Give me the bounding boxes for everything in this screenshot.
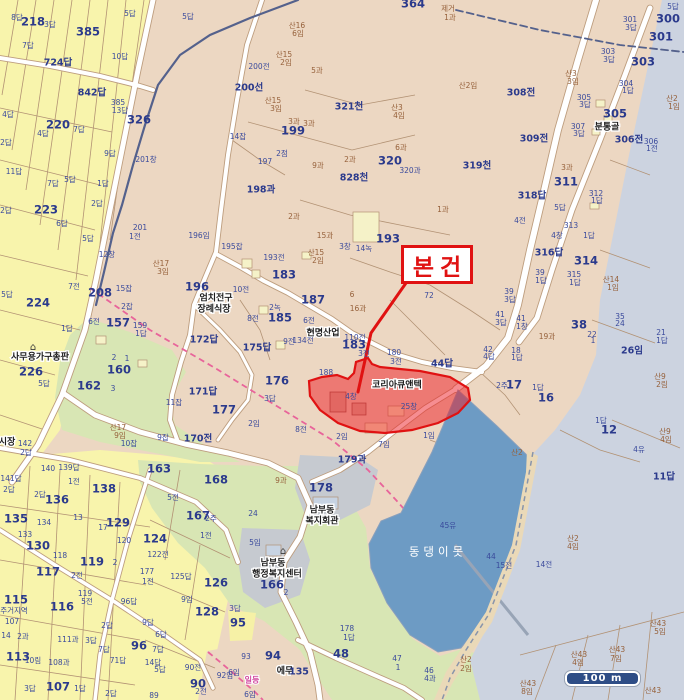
parcel-label: 15과 [317, 231, 334, 240]
parcel-label: 224 [26, 296, 50, 310]
parcel-label: 3전 [390, 356, 402, 366]
parcel-label: 44 [486, 552, 496, 561]
parcel-label: 89 [149, 691, 159, 700]
parcel-label: 15잡 [116, 283, 133, 293]
parcel-label: 9전 [283, 336, 295, 346]
parcel-label: 엄치전구 [199, 292, 232, 304]
parcel-label: 5답 [554, 202, 566, 212]
parcel-label: 3답 [44, 19, 56, 29]
parcel-label: 1전 [142, 576, 154, 586]
parcel-label: 163 [147, 462, 171, 476]
subject-parcel-building [330, 392, 346, 412]
parcel-label: 1임 [423, 431, 435, 440]
parcel-label: 129 [106, 516, 130, 530]
parcel-label: 208 [88, 286, 112, 300]
parcel-label: 130 [26, 539, 50, 553]
parcel-label: 218 [21, 15, 45, 29]
parcel-label: 2임 [336, 432, 348, 441]
parcel-label: 96답 [121, 596, 138, 606]
parcel-label: 2답 [0, 205, 12, 215]
parcel-label: 3답 [573, 128, 585, 138]
parcel-label: 199 [281, 124, 305, 138]
parcel-label: 10전 [233, 284, 250, 294]
parcel-label: 3답 [625, 22, 637, 32]
parcel-label: 8임 [521, 687, 533, 696]
parcel-label: 9답 [104, 148, 116, 158]
parcel-label: 385 [76, 25, 100, 39]
parcel-label: 125답 [170, 571, 191, 581]
parcel-label: 118 [53, 551, 68, 560]
parcel-label: 178 [309, 481, 333, 495]
parcel-label: 12창 [99, 250, 116, 259]
parcel-label: 5답 [182, 11, 194, 21]
parcel-label: 4임 [393, 111, 405, 120]
parcel-label: 128 [195, 605, 219, 619]
parcel-label: 171답 [189, 386, 218, 398]
parcel-label: 산2 [511, 447, 523, 457]
parcel-label: 193 [376, 232, 400, 246]
parcel-label: 5답 [64, 174, 76, 184]
parcel-label: 139답 [58, 462, 79, 472]
parcel-label: 5답 [124, 8, 136, 18]
building-footprint [138, 360, 147, 367]
parcel-label: 72 [424, 291, 434, 300]
parcel-label: 4창 [551, 231, 563, 240]
parcel-label: 108과 [48, 658, 69, 667]
parcel-label: 179과 [338, 454, 367, 466]
parcel-label: 321천 [335, 102, 364, 113]
parcel-label: 301 [649, 30, 673, 44]
parcel-label: 16과 [350, 304, 367, 313]
parcel-label: 316답 [535, 247, 564, 259]
parcel-label: 17 [506, 378, 522, 392]
parcel-label: 2잡 [121, 301, 133, 311]
parcel-label: 3답 [495, 317, 507, 327]
parcel-label: 6과 [395, 143, 407, 152]
parcel-label: 7임 [610, 654, 622, 663]
parcel-label: 178 [340, 624, 355, 633]
parcel-label: 1전 [200, 530, 212, 540]
parcel-label: 2전 [71, 570, 83, 580]
parcel-label: 185 [268, 311, 292, 325]
parcel-label: 187 [301, 293, 325, 307]
parcel-label: 산43 [645, 685, 662, 695]
parcel-label: 코리아큐앤텍 [372, 379, 422, 391]
parcel-label: 107 [46, 680, 70, 694]
parcel-label: 4창 [345, 392, 357, 401]
parcel-label: 119 [80, 555, 104, 569]
parcel-label: 115 [4, 593, 28, 607]
parcel-label: 162 [77, 379, 101, 393]
parcel-label: 2과 [17, 632, 29, 641]
parcel-label: 2답 [105, 688, 117, 698]
parcel-label: 14전 [536, 559, 553, 569]
parcel-label: 4답 [483, 351, 495, 361]
parcel-label: 107 [5, 617, 20, 626]
parcel-label: 200선 [235, 82, 264, 94]
parcel-label: 135 [289, 667, 309, 678]
parcel-label: 1전 [68, 476, 80, 486]
parcel-label: 4과 [424, 674, 436, 683]
parcel-label: 3과 [561, 163, 573, 172]
parcel-label: 2 [113, 558, 118, 567]
parcel-label: 2점 [276, 148, 288, 158]
parcel-label: 126 [204, 576, 228, 590]
parcel-label: 134 [37, 518, 52, 527]
subject-annotation-box: 본건 [401, 245, 473, 284]
parcel-label: 828천 [340, 173, 369, 184]
parcel-label: 135 [4, 512, 28, 526]
parcel-label: 134전 [292, 335, 313, 345]
map-scale-bar: 100 m [565, 671, 640, 686]
parcel-label: 5답 [1, 289, 13, 299]
parcel-label: 25창 [401, 402, 418, 411]
building-footprint [266, 545, 281, 556]
parcel-label: 1답 [591, 195, 603, 205]
parcel-label: 1답 [569, 277, 581, 287]
parcel-label: 2임 [312, 256, 324, 265]
subject-parcel-building [352, 403, 366, 415]
parcel-label: 2임 [248, 419, 260, 428]
building-icon: ⌂ [280, 546, 286, 557]
parcel-label: 5전 [81, 596, 93, 606]
parcel-label: 6전 [303, 315, 315, 325]
parcel-label: 주거지역 [0, 605, 28, 615]
parcel-label: 3 [111, 384, 116, 393]
parcel-label: 93 [241, 652, 251, 661]
parcel-label: 4임 [660, 435, 672, 444]
parcel-label: 2답 [101, 620, 113, 630]
parcel-label: 6임 [244, 690, 256, 699]
parcel-label: 4전 [514, 215, 526, 225]
building-footprint [259, 306, 268, 314]
parcel-label: 177 [212, 403, 236, 417]
parcel-label: 175답 [243, 342, 272, 354]
parcel-label: 7답 [22, 40, 34, 50]
parcel-label: 7전 [68, 281, 80, 291]
parcel-label: 1답 [535, 275, 547, 285]
parcel-label: 5임 [654, 627, 666, 636]
parcel-label: 3임 [567, 77, 579, 86]
parcel-label: 3답 [24, 683, 36, 693]
parcel-label: 6임 [292, 29, 304, 38]
parcel-label: 305 [603, 107, 627, 121]
parcel-label: 시장 [0, 436, 16, 448]
parcel-label: 6답 [56, 218, 68, 228]
parcel-label: 48 [333, 647, 349, 661]
parcel-label: 남부동 [261, 557, 286, 569]
parcel-label: 동댕이못 [409, 545, 467, 559]
parcel-label: 168 [204, 473, 228, 487]
parcel-label: 306전 [615, 134, 644, 146]
parcel-label: 47 [392, 654, 402, 663]
parcel-label: 5임 [249, 538, 261, 547]
parcel-label: 177 [140, 567, 155, 576]
parcel-label: 2답 [0, 137, 12, 147]
parcel-label: 223 [34, 203, 58, 217]
parcel-label: 313 [564, 221, 579, 230]
parcel-label: 3임 [270, 104, 282, 113]
parcel-label: 10잡 [121, 438, 138, 448]
parcel-label: 4임 [567, 542, 579, 551]
parcel-label: 318답 [518, 190, 547, 202]
parcel-label: 1전 [129, 231, 141, 241]
parcel-label: 5전 [167, 492, 179, 502]
parcel-label: 1임 [668, 102, 680, 111]
parcel-label: 10답 [112, 51, 129, 61]
parcel-label: 2답 [20, 447, 32, 457]
parcel-label: 176 [265, 374, 289, 388]
parcel-label: 95 [230, 616, 246, 630]
parcel-label: 196 [185, 280, 209, 294]
parcel-label: 6전 [88, 316, 100, 326]
parcel-label: 220 [46, 118, 70, 132]
parcel-label: 10림 [25, 656, 41, 665]
parcel-label: 9임 [181, 595, 193, 604]
parcel-label: 90전 [185, 662, 202, 672]
parcel-label: 117 [36, 565, 60, 579]
parcel-label: 300 [656, 12, 680, 26]
parcel-label: 195잡 [221, 241, 242, 251]
parcel-label: 38 [571, 318, 587, 332]
parcel-label: 2 [284, 588, 289, 597]
parcel-label: 26임 [621, 345, 643, 357]
parcel-label: 7답 [73, 124, 85, 134]
parcel-label: 160 [107, 363, 131, 377]
parcel-label: 7답 [47, 178, 59, 188]
parcel-label: 5답 [82, 233, 94, 243]
parcel-label: 157 [106, 316, 130, 330]
parcel-label: 2 [112, 353, 117, 362]
parcel-label: 9답 [142, 617, 154, 627]
parcel-label: 172답 [190, 334, 219, 346]
parcel-label: 2과 [288, 212, 300, 221]
parcel-label: 1전 [646, 143, 658, 153]
parcel-label: 일등 [245, 675, 260, 685]
parcel-label: 1 [396, 663, 401, 672]
parcel-label: 5답 [154, 664, 166, 674]
parcel-label: 4유 [633, 445, 645, 454]
parcel-label: 314 [574, 254, 598, 268]
parcel-label: 183 [272, 268, 296, 282]
parcel-label: 111과 [57, 635, 78, 644]
parcel-label: 7답 [98, 644, 110, 654]
parcel-label: 198과 [247, 184, 276, 196]
parcel-label: 122전 [147, 549, 168, 559]
parcel-label: 96 [131, 639, 147, 653]
parcel-label: 장례식장 [197, 303, 231, 315]
parcel-label: 326 [127, 113, 151, 127]
parcel-label: 320 [378, 154, 402, 168]
parcel-label: 138 [92, 482, 116, 496]
parcel-label: 201 [133, 223, 148, 232]
parcel-label: 201창 [135, 155, 156, 164]
parcel-label: 1답 [343, 632, 355, 642]
parcel-label: 8전 [295, 424, 307, 434]
parcel-label: 24 [248, 509, 258, 518]
parcel-label: 7답 [152, 644, 164, 654]
parcel-label: 5답 [667, 1, 679, 11]
building-footprint [96, 336, 106, 344]
parcel-label: 산2 [460, 654, 472, 664]
parcel-label: 3임 [157, 267, 169, 276]
parcel-label: 5답 [38, 378, 50, 388]
parcel-label: 45유 [440, 521, 457, 530]
parcel-label: 3창 [339, 242, 351, 251]
parcel-label: 14녹 [356, 244, 373, 253]
parcel-label: 11답 [653, 471, 675, 483]
parcel-label: 3과 [303, 119, 315, 128]
parcel-label: 319천 [463, 161, 492, 172]
parcel-label: 19과 [539, 332, 556, 341]
parcel-label: 4답 [2, 109, 14, 119]
parcel-label: 200전 [248, 61, 269, 71]
parcel-label: 9과 [275, 476, 287, 485]
parcel-label: 193전 [263, 252, 284, 262]
parcel-label: 24 [615, 319, 625, 328]
parcel-label: 7임 [378, 440, 390, 449]
parcel-label: 170전 [184, 433, 213, 445]
parcel-label: 166 [260, 578, 284, 592]
parcel-label: 제거 [441, 4, 455, 13]
parcel-label: 15전 [496, 560, 513, 570]
parcel-label: 사무용가구총판 [11, 351, 70, 363]
parcel-label: 4답 [37, 128, 49, 138]
parcel-label: 94 [265, 649, 281, 663]
parcel-label: 1답 [97, 178, 109, 188]
parcel-label: 196임 [188, 231, 209, 240]
parcel-label: 2임 [280, 58, 292, 67]
parcel-label: 산43 [609, 644, 626, 654]
parcel-label: 6 [350, 290, 355, 299]
parcel-label: 124 [143, 532, 167, 546]
parcel-label: 1임 [607, 283, 619, 292]
building-icon: ⌂ [30, 342, 36, 353]
parcel-label: 1답 [656, 335, 668, 345]
parcel-label: 복지회관 [305, 515, 339, 527]
parcel-label: 320과 [399, 166, 420, 175]
parcel-label: 136 [45, 493, 69, 507]
parcel-label: 6답 [155, 629, 167, 639]
parcel-label: 16 [538, 391, 554, 405]
parcel-label: 842답 [78, 87, 107, 99]
parcel-label: 1답 [511, 352, 523, 362]
building-footprint [242, 259, 252, 268]
parcel-label: 8전 [247, 313, 259, 323]
parcel-label: 2임 [460, 664, 472, 673]
parcel-label: 1과 [437, 205, 449, 214]
parcel-label: 1답 [622, 85, 634, 95]
parcel-label: 141답 [0, 473, 21, 483]
parcel-label: 1답 [135, 328, 147, 338]
parcel-label: 1답 [74, 683, 86, 693]
parcel-label: 산2임 [459, 80, 478, 90]
parcel-label: 11답 [6, 166, 23, 176]
parcel-label: 142 [18, 439, 33, 448]
parcel-label: 13 [73, 513, 83, 522]
parcel-label: 226 [19, 365, 43, 379]
parcel-label: 분통골 [595, 122, 620, 133]
parcel-label: 364 [401, 0, 425, 11]
parcel-label: 2림 [656, 380, 668, 389]
parcel-label: 1답 [595, 415, 607, 425]
parcel-label: 14 [1, 631, 11, 640]
parcel-label: 3답 [229, 603, 241, 613]
parcel-label: 116 [50, 600, 74, 614]
parcel-label: 2과 [344, 155, 356, 164]
parcel-label: 180 [387, 348, 402, 357]
parcel-label: 1답 [583, 230, 595, 240]
parcel-label: 197 [258, 157, 273, 166]
parcel-label: 2전 [195, 686, 207, 696]
parcel-label: 5과 [311, 66, 323, 75]
parcel-label: 9과 [312, 161, 324, 170]
parcel-label: 188 [319, 368, 334, 377]
parcel-label: 303 [631, 55, 655, 69]
parcel-label: 9잡 [157, 432, 169, 442]
parcel-label: 2답 [34, 489, 46, 499]
parcel-label: 2답 [91, 198, 103, 208]
parcel-label: 1답 [61, 323, 73, 333]
parcel-label: 44답 [431, 358, 453, 370]
parcel-label: 308전 [507, 87, 536, 99]
parcel-label: 1과 [444, 13, 456, 22]
building-footprint [252, 270, 260, 278]
parcel-label: 3답 [579, 99, 591, 109]
parcel-label: 92임 [217, 671, 233, 680]
map-viewport[interactable]: ⌂⌂2188답3답3857답724답5답5답10답842답38513답3264답… [0, 0, 684, 700]
parcel-label: 4임 [572, 658, 584, 667]
parcel-label: 3답 [264, 393, 276, 403]
parcel-label: 309전 [520, 133, 549, 145]
parcel-label: 1 [125, 354, 130, 363]
parcel-label: 3답 [85, 635, 97, 645]
parcel-label: 71답 [110, 655, 127, 665]
parcel-label: 1창 [516, 322, 528, 331]
parcel-label: 1 [591, 336, 596, 345]
parcel-label: 3답 [504, 294, 516, 304]
parcel-label: 110전 [344, 332, 365, 342]
parcel-label: 14잡 [230, 131, 247, 141]
parcel-label: 13답 [112, 105, 129, 115]
parcel-label: 11잡 [166, 397, 183, 407]
cadastral-map-canvas[interactable]: ⌂⌂2188답3답3857답724답5답5답10답842답38513답3264답… [0, 0, 684, 700]
parcel-label: 311 [554, 175, 578, 189]
parcel-label: 2답 [3, 484, 15, 494]
parcel-label: 3전 [358, 348, 370, 358]
parcel-label: 724답 [44, 57, 73, 69]
parcel-label: 남부동 [310, 504, 335, 516]
parcel-label: 3답 [603, 54, 615, 64]
parcel-label: 2주 [205, 514, 217, 523]
parcel-label: 140 [41, 464, 56, 473]
parcel-label: 120 [117, 536, 132, 545]
parcel-label: 8답 [11, 12, 23, 22]
